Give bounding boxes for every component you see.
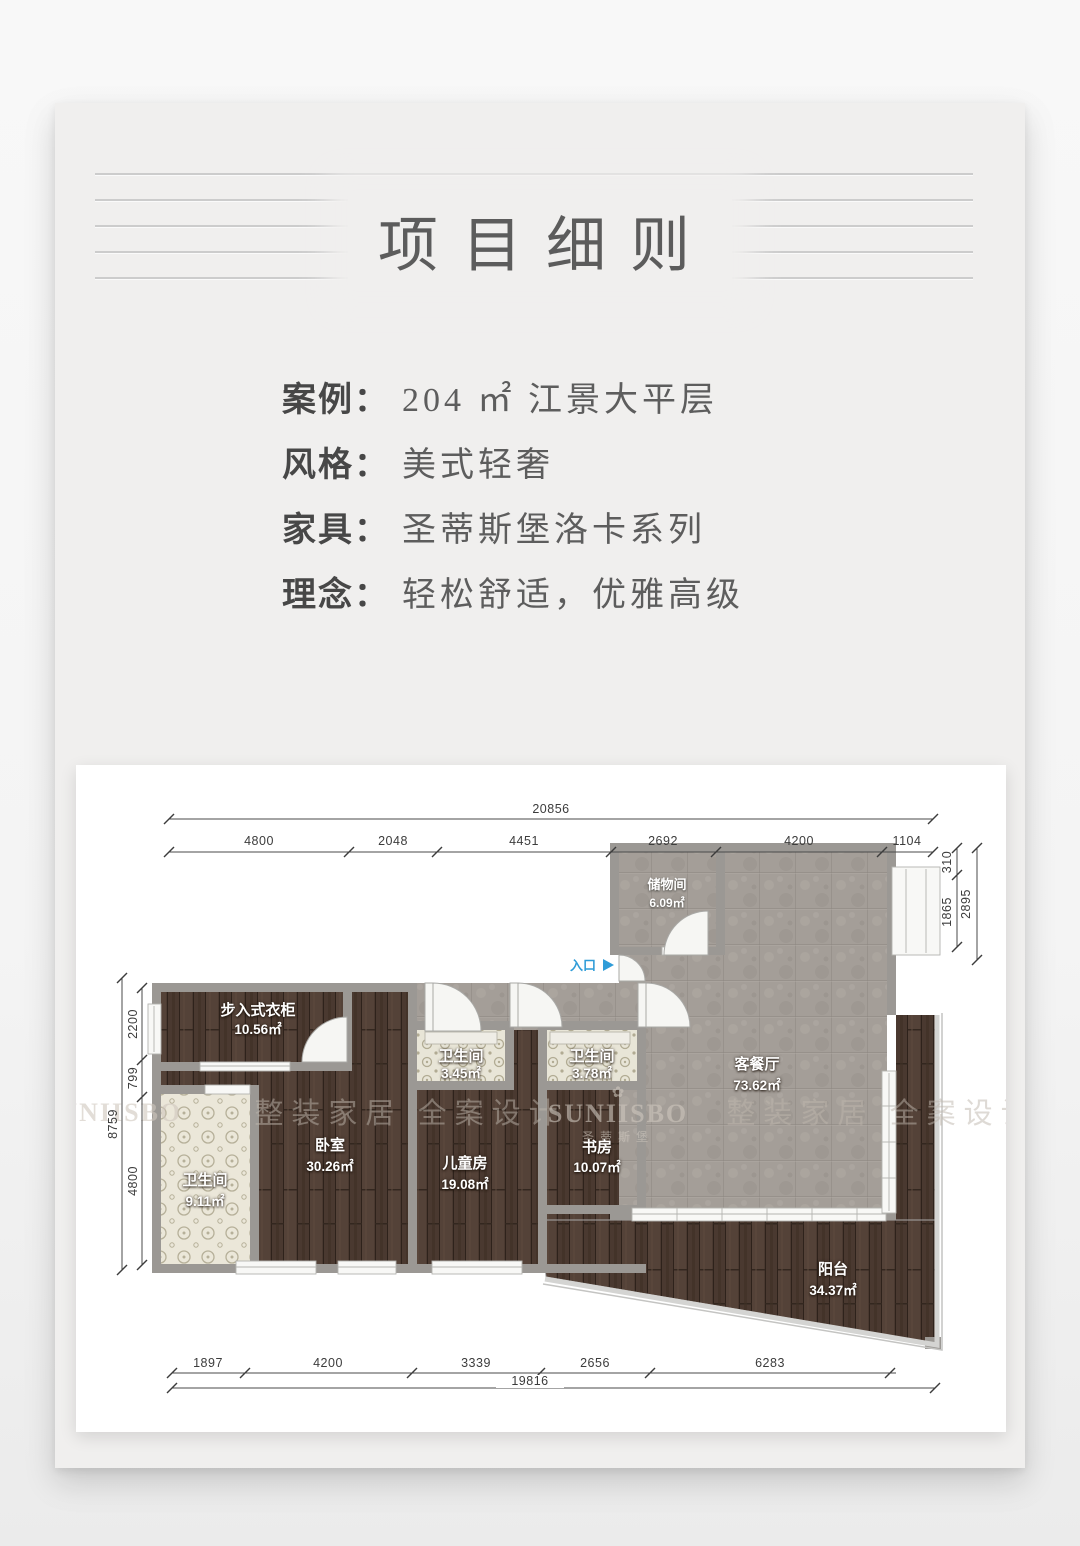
- room-name: 卫生间: [438, 1047, 483, 1065]
- room-name: 储物间: [646, 877, 686, 892]
- dim-left-seg: 4800: [126, 1166, 140, 1196]
- info-row-concept: 理念： 轻松舒适，优雅高级: [282, 566, 744, 616]
- info-label: 理念：: [282, 567, 390, 616]
- info-row-style: 风格： 美式轻奢: [282, 436, 554, 486]
- room-area: 19.08㎡: [441, 1176, 489, 1192]
- info-value: 轻松舒适，优雅高级: [402, 567, 744, 616]
- project-card: 项目细则 案例： 204 ㎡ 江景大平层 风格： 美式轻奢 家具： 圣蒂斯堡洛卡…: [55, 103, 1025, 1468]
- dim-bottom-seg: 3339: [461, 1356, 491, 1370]
- info-label: 风格：: [282, 437, 390, 486]
- floor-plan-panel: SUNIISBO 整装家居 全案设计 ✿ SUNIISBO 圣蒂斯堡 整装家居 …: [76, 765, 1006, 1432]
- balcony-floor: [540, 1220, 935, 1343]
- dim-left-total: 8759: [106, 1109, 120, 1139]
- room-area: 34.37㎡: [809, 1282, 857, 1298]
- bath-a-vanity: [425, 1032, 497, 1044]
- room-area: 10.56㎡: [234, 1021, 282, 1037]
- entry-marker: 入口: [570, 958, 614, 973]
- room-bath-a: 卫生间 3.45㎡: [438, 1047, 483, 1081]
- dim-left-seg: 2200: [126, 1009, 140, 1039]
- dim-left-seg: 799: [126, 1067, 140, 1089]
- room-bath-b: 卫生间 3.78㎡: [569, 1047, 614, 1081]
- room-name: 儿童房: [441, 1154, 487, 1172]
- watermark-slogan-left: 整装家居 全案设计: [254, 1097, 565, 1130]
- floor-plan: SUNIISBO 整装家居 全案设计 ✿ SUNIISBO 圣蒂斯堡 整装家居 …: [76, 765, 1006, 1432]
- room-area: 3.78㎡: [572, 1065, 612, 1081]
- info-value: 圣蒂斯堡洛卡系列: [402, 502, 706, 551]
- room-name: 卧室: [315, 1136, 345, 1154]
- room-name: 客餐厅: [733, 1055, 779, 1073]
- room-area: 10.07㎡: [573, 1159, 621, 1175]
- dim-bottom-seg: 1897: [193, 1356, 223, 1370]
- room-area: 73.62㎡: [733, 1077, 781, 1093]
- dim-bottom-seg: 4200: [313, 1356, 343, 1370]
- entry-label: 入口: [570, 958, 596, 973]
- room-name: 卫生间: [182, 1171, 227, 1189]
- dim-right-seg: 310: [940, 851, 954, 873]
- dim-bottom-seg: 2656: [580, 1356, 610, 1370]
- dim-top-seg: 4451: [509, 834, 539, 848]
- dim-top-seg: 2048: [378, 834, 408, 848]
- room-area: 6.09㎡: [649, 895, 684, 910]
- info-value: 美式轻奢: [402, 437, 554, 486]
- page-title: 项目细则: [348, 191, 732, 290]
- dim-top-seg: 1104: [893, 834, 922, 848]
- info-value: 204 ㎡ 江景大平层: [402, 372, 718, 421]
- room-area: 3.45㎡: [441, 1065, 481, 1081]
- dim-bottom-total: 19816: [511, 1374, 548, 1388]
- dim-top-total: 20856: [532, 802, 569, 816]
- info-label: 案例：: [282, 372, 390, 421]
- watermark-slogan-right: 整装家居 全案设计: [726, 1097, 1006, 1130]
- decorative-line: [95, 173, 973, 176]
- room-name: 步入式衣柜: [220, 1001, 295, 1019]
- dim-right-seg: 1865: [940, 897, 954, 927]
- dim-bottom-seg: 6283: [755, 1356, 785, 1370]
- room-area: 9.11㎡: [185, 1193, 225, 1209]
- dim-right-total: 2895: [959, 889, 973, 919]
- info-row-furniture: 家具： 圣蒂斯堡洛卡系列: [282, 501, 706, 551]
- room-name: 书房: [582, 1138, 612, 1156]
- dim-top-seg: 4800: [244, 834, 274, 848]
- watermark-brand: SUNIISBO: [548, 1099, 688, 1128]
- room-area: 30.26㎡: [306, 1158, 354, 1174]
- bath-b-vanity: [550, 1032, 630, 1044]
- room-name: 卫生间: [569, 1047, 614, 1065]
- dim-top-seg: 2692: [648, 834, 678, 848]
- living-floor-top: [725, 852, 887, 955]
- room-name: 阳台: [818, 1260, 848, 1278]
- dim-top-seg: 4200: [784, 834, 814, 848]
- watermark-left: SUNIISBO: [76, 1098, 182, 1127]
- entry-arrow-icon: [603, 959, 614, 971]
- info-label: 家具：: [282, 502, 390, 551]
- info-row-case: 案例： 204 ㎡ 江景大平层: [282, 371, 718, 421]
